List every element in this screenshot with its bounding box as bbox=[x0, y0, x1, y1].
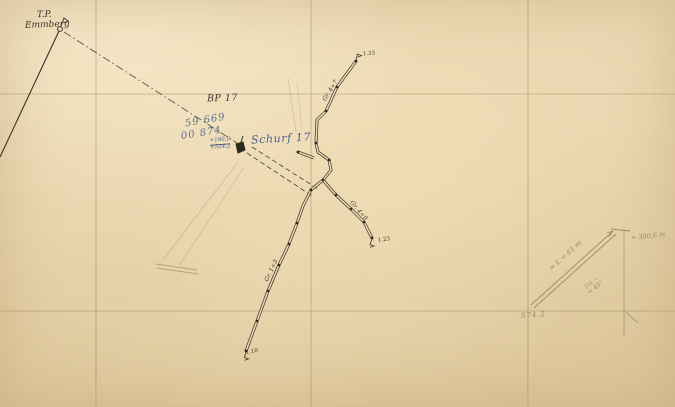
schurf-marker bbox=[236, 136, 245, 153]
map-linework bbox=[0, 0, 675, 407]
coordinate-grid bbox=[0, 0, 675, 407]
bp-point-label: BP 17 bbox=[207, 93, 238, 104]
sight-lines bbox=[0, 31, 318, 196]
triangulation-point-name: Emmberg bbox=[25, 20, 70, 31]
benchmark-label-133: 1.33 bbox=[363, 51, 376, 58]
survey-map-sheet: T.P. Emmberg BP 17 59 669 00 874 +180,0 … bbox=[0, 0, 675, 407]
schurf-elevation-fraction: +180,0 +524,2 bbox=[210, 137, 231, 151]
pencil-construction-lines bbox=[156, 78, 302, 274]
